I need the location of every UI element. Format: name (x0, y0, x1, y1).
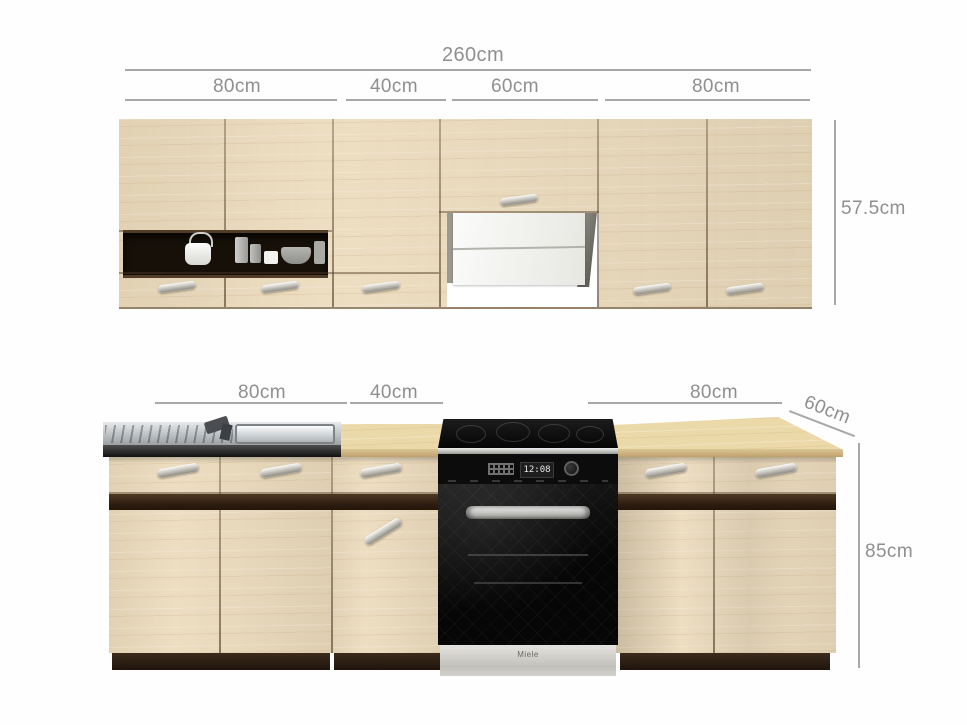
door-handle-left (633, 282, 672, 295)
counter-front-edge (612, 449, 843, 457)
dim-upper-seg3-line (452, 99, 598, 101)
dim-lower-seg1-line (155, 402, 347, 404)
door-divider (713, 457, 715, 653)
unit-divider (439, 119, 441, 307)
dim-upper-total-label: 260cm (398, 44, 548, 67)
flap-handle-left (158, 280, 197, 293)
oven-bottom-panel: Miele (440, 645, 616, 676)
dim-upper-seg3-label: 60cm (465, 76, 565, 98)
base-cabinet-80-right (616, 457, 836, 653)
cup-white (264, 251, 278, 264)
accent-strip (109, 494, 331, 510)
ceramic-cooktop (438, 419, 618, 448)
cup-tall (235, 237, 248, 263)
base-cabinet-40 (331, 457, 446, 653)
ambient-shadow (616, 457, 836, 653)
oven-door (438, 484, 618, 645)
cabinet-front (331, 457, 446, 653)
accent-strip (616, 494, 836, 510)
dim-lower-seg1-label: 80cm (212, 382, 312, 404)
oven-knob (564, 461, 579, 476)
plinth-mid (334, 653, 444, 670)
door-divider (219, 457, 221, 653)
counter-80-right (612, 417, 843, 457)
flap-seam (119, 272, 332, 274)
burner-ring (576, 426, 604, 443)
counter-shadow (331, 457, 446, 463)
oven-brand-label: Miele (440, 650, 616, 659)
dim-upper-seg1-label: 80cm (187, 76, 287, 98)
dim-upper-total-line (125, 69, 811, 71)
flap-seam (332, 272, 439, 274)
kitchen-dimension-diagram: 260cm 80cm 40cm 60cm 80cm 57.5cm (0, 0, 967, 725)
sink-countertop (103, 422, 341, 457)
dim-lower-seg2-label: 40cm (344, 382, 444, 404)
dim-lower-height-label: 85cm (865, 541, 955, 563)
hood-door-handle (500, 193, 539, 206)
dim-upper-seg4-line (605, 99, 810, 101)
dim-lower-seg2-line (350, 402, 443, 404)
plinth-right (620, 653, 830, 670)
door-divider (224, 119, 226, 307)
unit-divider (332, 119, 334, 307)
accent-strip (331, 494, 446, 510)
counter-40 (341, 424, 446, 457)
flap-handle (362, 280, 401, 293)
burner-ring (496, 422, 530, 442)
cooker: 12:08 Miele (438, 419, 618, 676)
control-icons (488, 463, 514, 475)
flap-handle-right (261, 280, 300, 293)
dim-lower-height-line (858, 443, 860, 668)
dim-upper-seg2-label: 40cm (344, 76, 444, 98)
button-row (448, 480, 608, 482)
control-panel: 12:08 (438, 454, 618, 484)
door-handle-right (726, 282, 765, 295)
door-divider (706, 119, 708, 307)
kettle (185, 243, 211, 265)
glass-reflection (438, 484, 618, 645)
cup-right (314, 241, 325, 264)
dim-upper-seg4-label: 80cm (666, 76, 766, 98)
cup-medium (250, 244, 261, 263)
upper-cabinet-60-hood (439, 119, 599, 307)
extractor-hood (453, 213, 585, 285)
counter-top-surface (341, 424, 446, 449)
dim-upper-height-label: 57.5cm (841, 198, 931, 220)
base-cabinet-sink-80 (109, 457, 331, 653)
dim-upper-seg1-line (125, 99, 337, 101)
upper-cabinet-40 (332, 119, 439, 307)
dim-lower-seg3-label: 80cm (664, 382, 764, 404)
dim-upper-height-line (834, 120, 836, 305)
sink-basin (235, 424, 335, 444)
sink-counter-edge (103, 445, 341, 457)
burner-ring (538, 424, 570, 443)
burner-ring (456, 425, 486, 443)
open-shelf-niche (123, 230, 328, 278)
dim-upper-seg2-line (346, 99, 446, 101)
counter-front-edge (341, 449, 446, 457)
dim-lower-seg3-line (588, 402, 782, 404)
hood-recess (447, 213, 599, 307)
upper-cabinet-80-right (599, 119, 812, 307)
plinth-left (112, 653, 330, 670)
unit-divider (331, 457, 333, 653)
upper-cabinet-run (119, 119, 812, 309)
hood-groove (453, 246, 585, 250)
clock-display: 12:08 (520, 462, 554, 478)
upper-cabinet-80-left (119, 119, 332, 307)
bowl (281, 247, 311, 264)
